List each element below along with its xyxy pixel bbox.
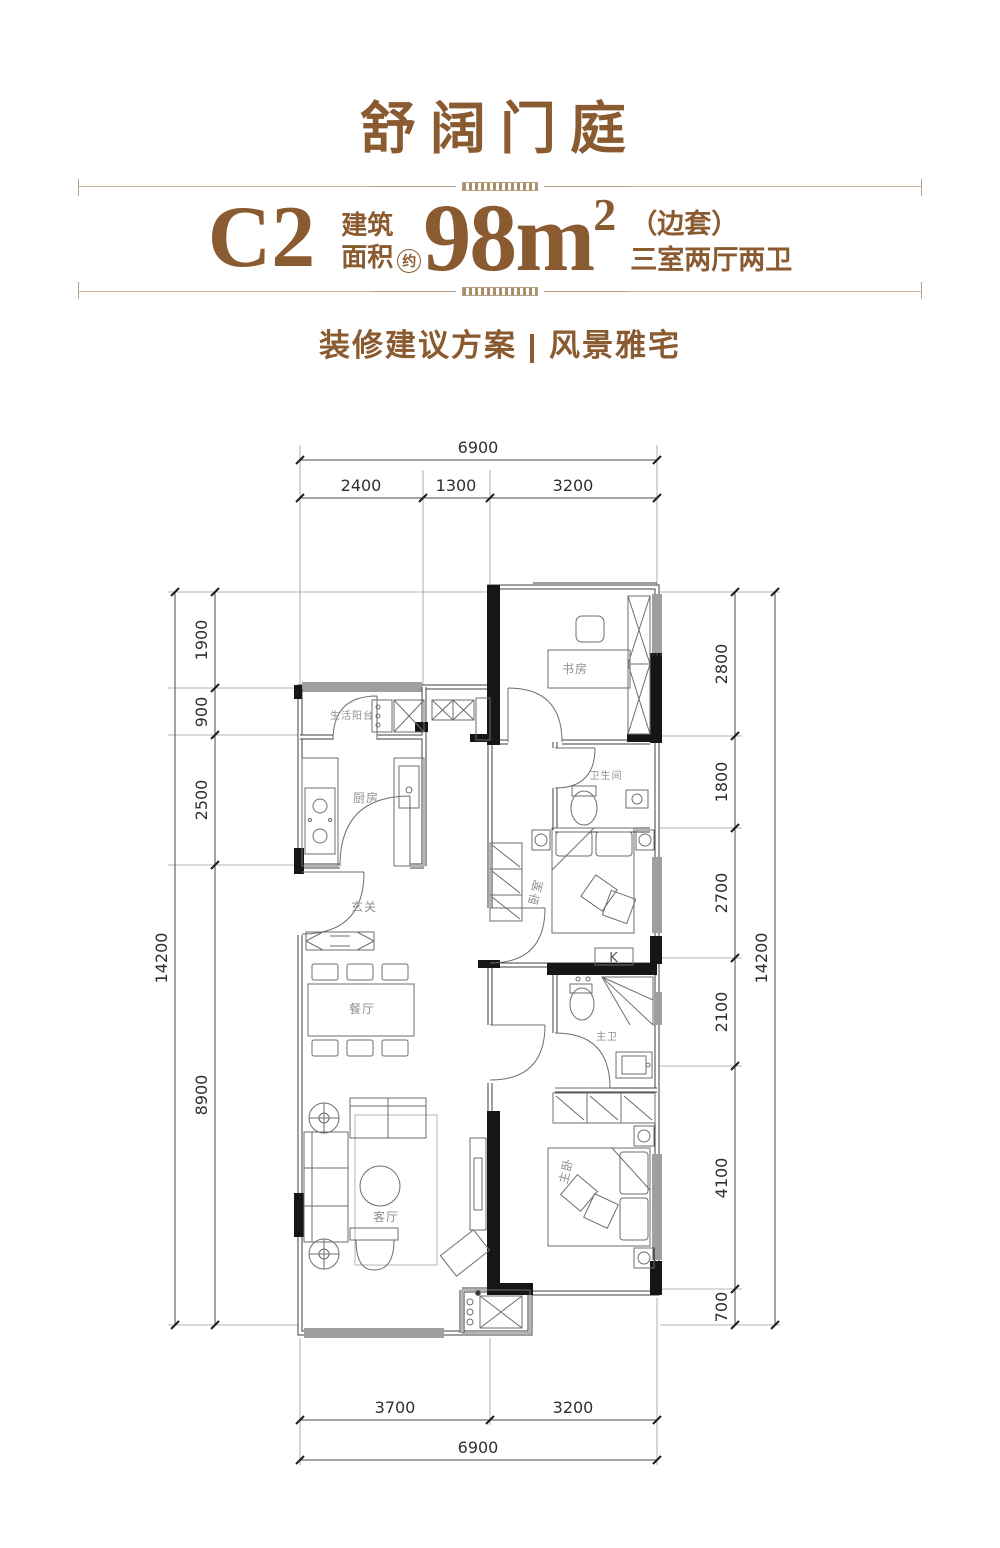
room-label-study: 书房: [562, 661, 588, 676]
area-label-line2: 面积: [341, 241, 393, 274]
coffee-table: [360, 1166, 400, 1206]
area-value: 98m2: [423, 190, 616, 286]
unit-code: C2: [208, 194, 316, 282]
room-label-master-bedroom: 主卧: [556, 1157, 576, 1186]
area-label-line1: 建筑: [341, 209, 393, 242]
dim-top-seg: 1300: [436, 476, 477, 495]
dim-right-total: 14200: [752, 933, 771, 984]
dim-bottom-seg: 3700: [375, 1398, 416, 1417]
subtitle: 装修建议方案 | 风景雅宅: [0, 320, 1000, 365]
bathroom-door: [555, 748, 595, 788]
armchair: [350, 1228, 398, 1270]
room-label-bathroom: 卫生间: [590, 769, 623, 782]
door-arcs: [302, 688, 610, 1088]
room-label-master-bath: 主卫: [596, 1031, 618, 1043]
side-table: [309, 1103, 339, 1133]
dim-top-seg: 2400: [341, 476, 382, 495]
fridge: [432, 698, 490, 740]
dim-left-seg: 8900: [192, 1075, 211, 1116]
room-label-foyer: 玄关: [351, 899, 377, 914]
room-label-living: 客厅: [373, 1209, 399, 1224]
unit-tags: （边套） 三室两厅两卫: [630, 206, 792, 279]
room-label-dining: 餐厅: [349, 1001, 375, 1016]
bedroom-bed: [552, 828, 636, 933]
kitchen-sink: [394, 758, 424, 866]
master-toilet: [570, 977, 594, 1020]
dim-right-seg: 2700: [712, 873, 731, 914]
floor-plan-page: 舒阔门庭 C2 建筑 面积 约 98m2 （边套） 三室两厅两卫 装修建议方案 …: [0, 0, 1000, 1548]
extension-lines: [168, 445, 780, 1465]
bath-sink: [626, 790, 648, 808]
nightstand: [636, 830, 654, 850]
dim-bottom-total: 6900: [458, 1438, 499, 1457]
corner-shower: [602, 977, 653, 1025]
area-superscript: 2: [593, 189, 616, 240]
bedroom-door: [490, 908, 545, 963]
tv-console: [470, 1138, 486, 1230]
dim-left-total: 14200: [152, 933, 171, 984]
room-label-bedroom: 卧室: [525, 877, 546, 906]
dim-right-seg: 700: [712, 1292, 731, 1323]
dimension-lines: [175, 460, 775, 1460]
room-label-service-balcony: 生活阳台: [330, 709, 374, 722]
sofa: [304, 1132, 348, 1242]
entry-door-gap: [295, 871, 305, 935]
dim-bottom-seg: 3200: [553, 1398, 594, 1417]
study-wardrobe: [628, 596, 650, 734]
dim-left-seg: 900: [192, 697, 211, 728]
desk-chair: [576, 616, 604, 642]
side-table: [309, 1239, 339, 1269]
dim-top-seg: 3200: [553, 476, 594, 495]
dim-right-seg: 2800: [712, 644, 731, 685]
desk: [548, 650, 630, 688]
stove: [305, 788, 335, 854]
platform-washer: [462, 1290, 530, 1333]
floor-plan-svg: 6900 2400 1300 3200 1900 900 2500 8900 1…: [0, 430, 1000, 1520]
dim-left-seg: 1900: [192, 620, 211, 661]
study-door: [508, 688, 562, 742]
kitchen-counter: [302, 758, 338, 866]
dim-top-total: 6900: [458, 438, 499, 457]
shoe-cabinet: [306, 932, 374, 950]
nightstand: [634, 1126, 654, 1146]
loveseat: [350, 1098, 426, 1138]
closet-mark: K: [609, 951, 619, 966]
corridor-door: [490, 1025, 545, 1080]
floor-plan: 6900 2400 1300 3200 1900 900 2500 8900 1…: [0, 430, 1000, 1520]
area-label: 建筑 面积 约: [341, 209, 393, 274]
bedroom-wardrobe: [490, 843, 522, 921]
master-closet: [553, 1093, 655, 1123]
utility-cabinet: [372, 700, 392, 732]
approx-circle: 约: [397, 249, 421, 273]
dim-right-seg: 4100: [712, 1158, 731, 1199]
unit-spec-row: C2 建筑 面积 约 98m2 （边套） 三室两厅两卫: [0, 186, 1000, 290]
page-title: 舒阔门庭: [0, 84, 1000, 165]
dimension-ticks: [171, 456, 779, 1464]
dim-right-seg: 1800: [712, 762, 731, 803]
walls: [295, 583, 657, 1333]
washing-machine: [394, 700, 424, 732]
nightstand: [532, 830, 550, 850]
unit-layout: 三室两厅两卫: [630, 242, 792, 278]
master-bath-sink: [616, 1052, 652, 1078]
toilet: [571, 786, 597, 825]
dim-left-seg: 2500: [192, 780, 211, 821]
room-label-kitchen: 厨房: [353, 790, 379, 805]
dim-right-seg: 2100: [712, 992, 731, 1033]
unit-position: （边套）: [630, 206, 792, 242]
decor-table: [440, 1230, 489, 1276]
